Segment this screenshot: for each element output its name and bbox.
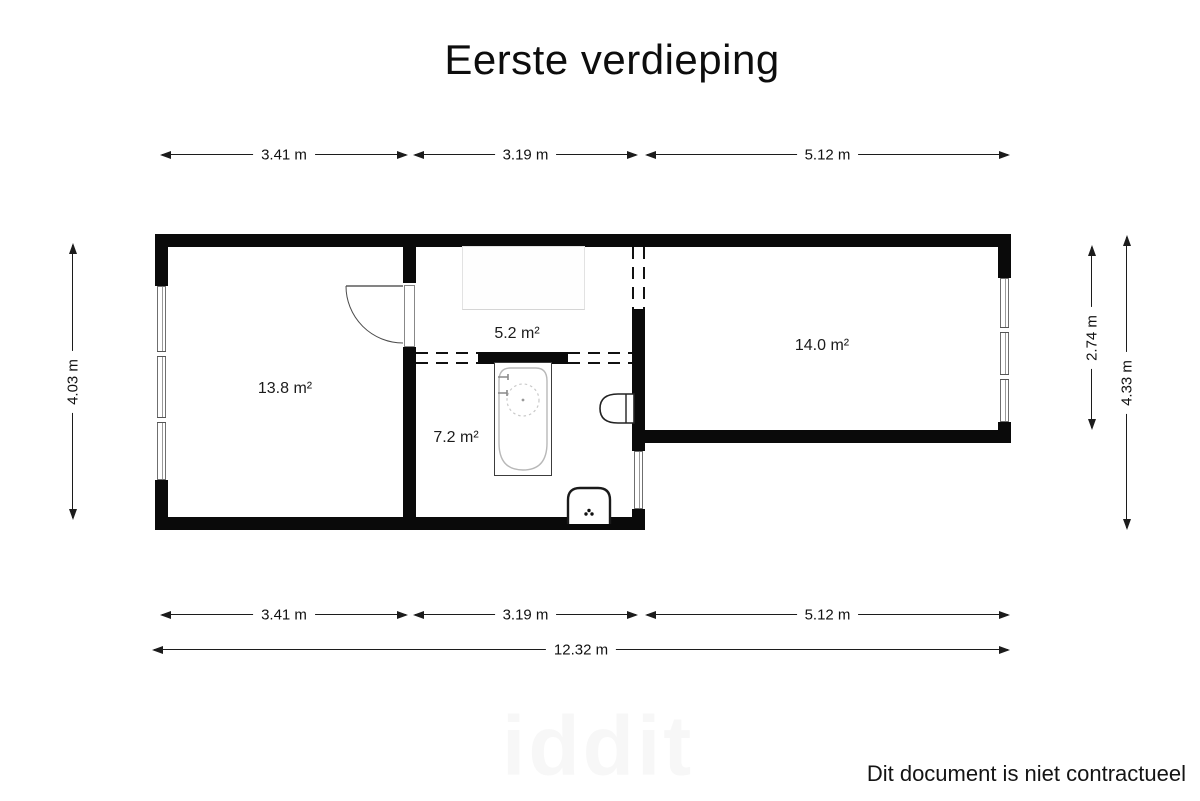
dimension-bottom-1: 3.41 m — [160, 607, 408, 623]
dimension-label: 12.32 m — [546, 642, 616, 659]
dimension-top-3: 5.12 m — [645, 147, 1010, 163]
toilet — [598, 392, 635, 425]
dimension-label: 2.74 m — [1084, 307, 1101, 369]
sink — [566, 486, 612, 524]
arrowhead-right-icon — [397, 611, 408, 619]
arrowhead-right-icon — [397, 151, 408, 159]
room-area-label-left: 13.8 m² — [258, 380, 312, 398]
arrowhead-right-icon — [627, 151, 638, 159]
room-area-label-right: 14.0 m² — [795, 337, 849, 355]
window-pane — [162, 287, 163, 479]
arrowhead-left-icon — [413, 611, 424, 619]
window-pane — [639, 452, 640, 508]
wall-interior-lower — [403, 347, 416, 517]
dimension-right-outer: 4.33 m — [1119, 235, 1135, 530]
bathtub — [494, 362, 552, 476]
wall-right-upper — [998, 234, 1011, 278]
wall-bottom-right-room — [632, 430, 1011, 443]
window-mullion — [157, 417, 166, 423]
arrowhead-down-icon — [1123, 519, 1131, 530]
arrowhead-down-icon — [1088, 419, 1096, 430]
window-right — [1000, 278, 1009, 422]
page-title: Eerste verdieping — [444, 36, 779, 84]
dimension-label: 3.19 m — [495, 607, 557, 624]
arrowhead-down-icon — [69, 509, 77, 520]
wall-interior-upper — [403, 247, 416, 283]
ceiling-recess — [462, 246, 585, 310]
arrowhead-up-icon — [69, 243, 77, 254]
open-wall-dashed-left — [416, 352, 478, 364]
window-mullion — [157, 351, 166, 357]
dimension-bottom-3: 5.12 m — [645, 607, 1010, 623]
dimension-top-1: 3.41 m — [160, 147, 408, 163]
wall-mid-right-lower — [632, 509, 645, 530]
dimension-label: 4.33 m — [1119, 352, 1136, 414]
dimension-top-2: 3.19 m — [413, 147, 638, 163]
arrowhead-left-icon — [160, 151, 171, 159]
room-area-label-middle: 5.2 m² — [494, 325, 539, 343]
arrowhead-up-icon — [1123, 235, 1131, 246]
arrowhead-right-icon — [999, 151, 1010, 159]
arrowhead-left-icon — [645, 151, 656, 159]
arrowhead-right-icon — [627, 611, 638, 619]
window-left — [157, 286, 166, 480]
wall-left-upper — [155, 234, 168, 286]
arrowhead-left-icon — [160, 611, 171, 619]
arrowhead-up-icon — [1088, 245, 1096, 256]
dimension-total-width: 12.32 m — [152, 642, 1010, 658]
dimension-label: 4.03 m — [65, 351, 82, 413]
arrowhead-left-icon — [645, 611, 656, 619]
window-mullion — [1000, 327, 1009, 333]
watermark: iddit — [502, 698, 694, 795]
room-area-label-bathroom: 7.2 m² — [433, 429, 478, 447]
window-mullion — [1000, 374, 1009, 380]
arrowhead-right-icon — [999, 646, 1010, 654]
window-pane — [1005, 279, 1006, 421]
open-wall-dashed-vertical — [632, 247, 645, 309]
dimension-label: 5.12 m — [797, 147, 859, 164]
dimension-label: 3.19 m — [495, 147, 557, 164]
dimension-left: 4.03 m — [65, 243, 81, 520]
wall-right-lower — [998, 422, 1011, 443]
arrowhead-left-icon — [152, 646, 163, 654]
dimension-bottom-2: 3.19 m — [413, 607, 638, 623]
window-bathroom — [634, 451, 643, 509]
door — [340, 282, 408, 350]
dimension-label: 5.12 m — [797, 607, 859, 624]
arrowhead-right-icon — [999, 611, 1010, 619]
dimension-label: 3.41 m — [253, 607, 315, 624]
arrowhead-left-icon — [413, 151, 424, 159]
disclaimer-text: Dit document is niet contractueel — [867, 761, 1186, 787]
open-wall-dashed-right — [568, 352, 632, 364]
dimension-right-inner: 2.74 m — [1084, 245, 1100, 430]
dimension-label: 3.41 m — [253, 147, 315, 164]
